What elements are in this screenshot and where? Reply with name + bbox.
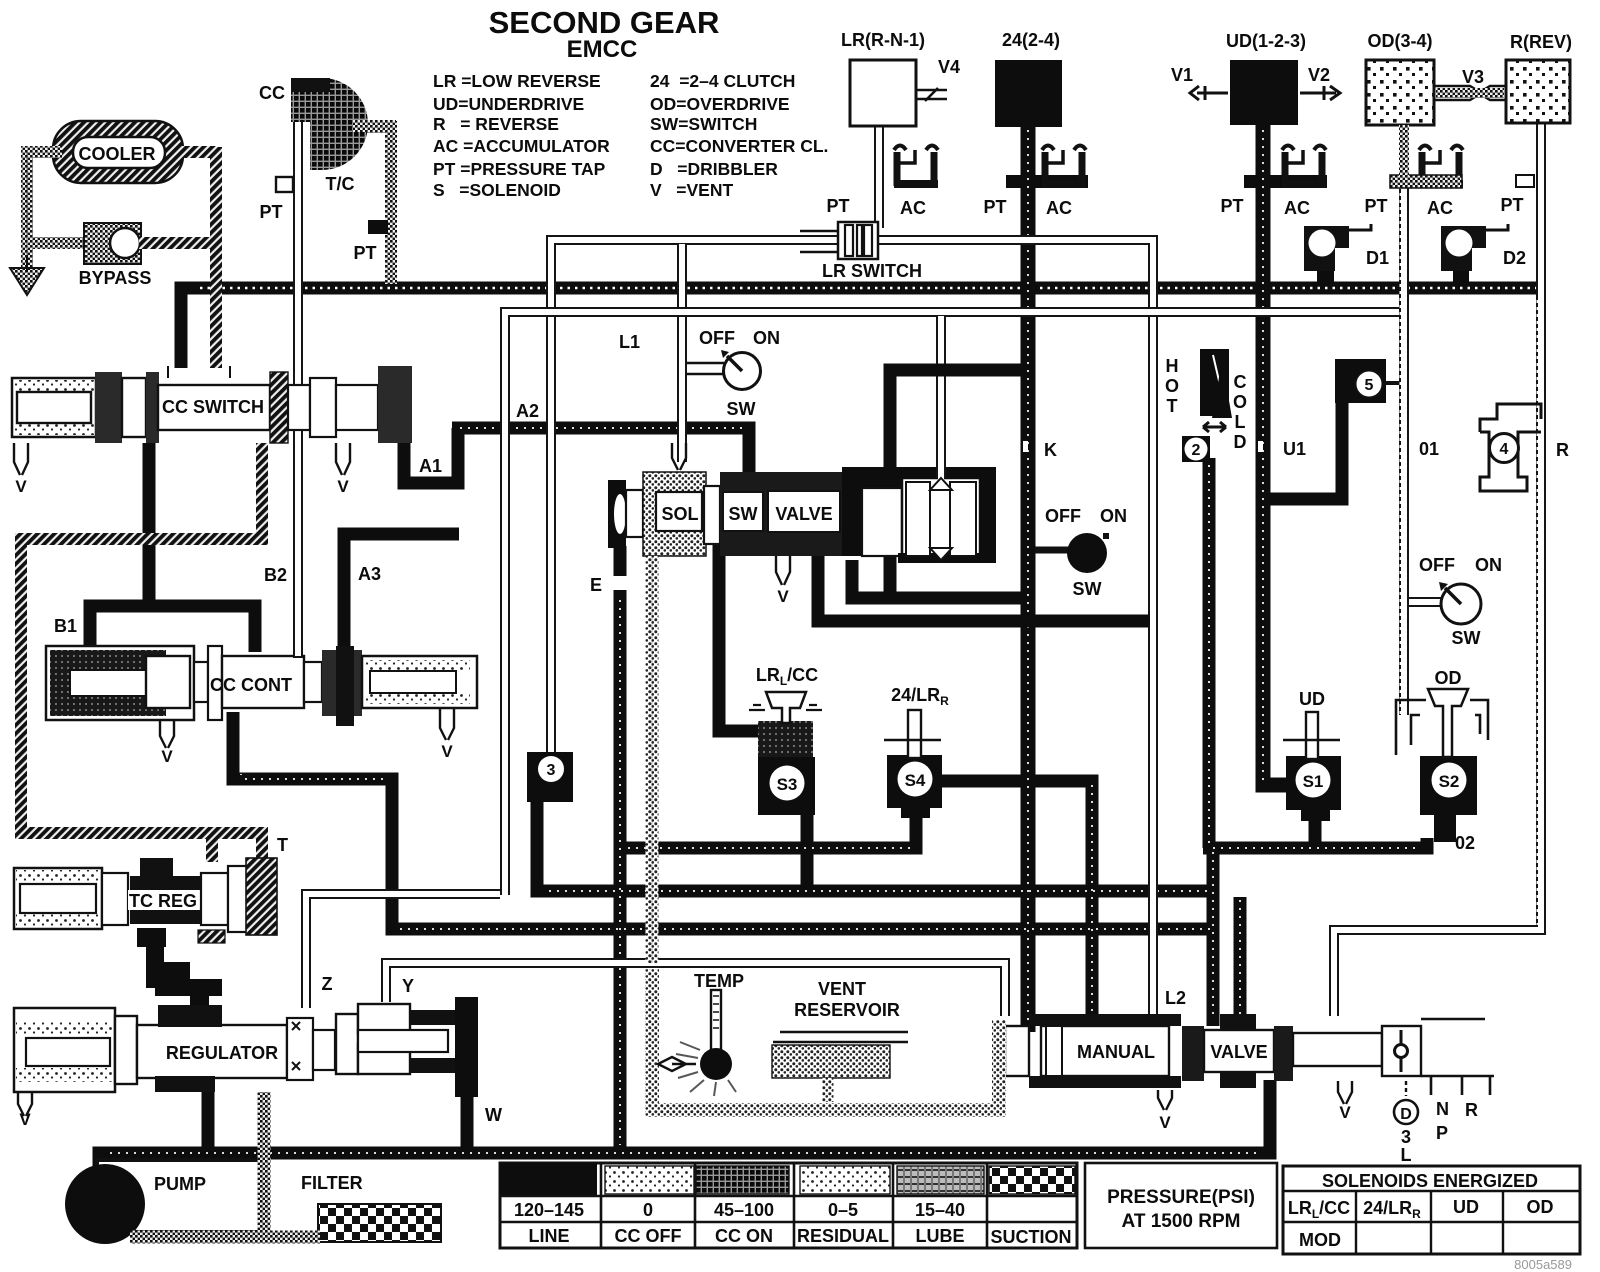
svg-text:LR SWITCH: LR SWITCH <box>822 261 922 281</box>
svg-text:UD: UD <box>1299 689 1325 709</box>
svg-text:ON: ON <box>753 328 780 348</box>
svg-text:D: D <box>1400 1106 1412 1123</box>
svg-text:4: 4 <box>1500 441 1509 458</box>
svg-text:EMCC: EMCC <box>567 36 638 63</box>
svg-text:L1: L1 <box>619 332 640 352</box>
svg-text:R: R <box>1465 1100 1478 1120</box>
svg-text:24 =2–4 CLUTCH: 24 =2–4 CLUTCH <box>650 71 795 91</box>
svg-text:PRESSURE(PSI): PRESSURE(PSI) <box>1107 1187 1255 1208</box>
svg-text:O: O <box>1233 392 1247 412</box>
svg-text:N: N <box>1436 1099 1449 1119</box>
svg-text:PT: PT <box>1220 196 1243 216</box>
svg-text:ON: ON <box>1100 506 1127 526</box>
svg-text:V: V <box>777 587 789 606</box>
svg-text:T: T <box>277 835 288 855</box>
svg-text:0: 0 <box>643 1200 653 1220</box>
svg-text:B1: B1 <box>54 616 77 636</box>
svg-text:AC: AC <box>1427 198 1453 218</box>
svg-text:D1: D1 <box>1366 248 1389 268</box>
svg-text:MOD: MOD <box>1299 1230 1341 1250</box>
svg-text:R = REVERSE: R = REVERSE <box>433 114 559 134</box>
svg-text:V: V <box>161 747 173 766</box>
svg-text:8005a589: 8005a589 <box>1514 1257 1572 1272</box>
svg-text:ON: ON <box>1475 555 1502 575</box>
svg-text:UD=UNDERDRIVE: UD=UNDERDRIVE <box>433 94 584 114</box>
svg-text:RESIDUAL: RESIDUAL <box>797 1226 889 1246</box>
svg-text:PT =PRESSURE TAP: PT =PRESSURE TAP <box>433 159 606 179</box>
svg-text:D2: D2 <box>1503 248 1526 268</box>
svg-text:OD: OD <box>1527 1197 1554 1217</box>
svg-text:3: 3 <box>1401 1127 1411 1147</box>
svg-text:5: 5 <box>1365 377 1374 394</box>
svg-text:S1: S1 <box>1303 772 1324 791</box>
svg-text:VALVE: VALVE <box>775 504 832 524</box>
svg-text:V1: V1 <box>1171 65 1193 85</box>
svg-text:V: V <box>19 1110 31 1129</box>
svg-text:E: E <box>590 575 602 595</box>
svg-text:LR =LOW REVERSE: LR =LOW REVERSE <box>433 71 601 91</box>
svg-text:P: P <box>1436 1123 1448 1143</box>
svg-text:UD(1-2-3): UD(1-2-3) <box>1226 31 1306 51</box>
svg-text:SW: SW <box>729 504 758 524</box>
svg-text:V2: V2 <box>1308 65 1330 85</box>
svg-text:UD: UD <box>1453 1197 1479 1217</box>
svg-text:OD(3-4): OD(3-4) <box>1367 31 1432 51</box>
svg-text:V: V <box>441 742 453 761</box>
svg-text:D =DRIBBLER: D =DRIBBLER <box>650 159 778 179</box>
svg-text:V: V <box>337 477 349 496</box>
svg-text:V =VENT: V =VENT <box>650 180 733 200</box>
svg-text:COOLER: COOLER <box>78 144 155 164</box>
svg-text:MANUAL: MANUAL <box>1077 1042 1155 1062</box>
svg-text:OD=OVERDRIVE: OD=OVERDRIVE <box>650 94 790 114</box>
svg-text:W: W <box>485 1105 502 1125</box>
svg-text:S3: S3 <box>777 775 798 794</box>
svg-text:24(2-4): 24(2-4) <box>1002 30 1060 50</box>
svg-text:LINE: LINE <box>528 1226 569 1246</box>
svg-text:AC: AC <box>1284 198 1310 218</box>
svg-text:D: D <box>1234 432 1247 452</box>
svg-text:15–40: 15–40 <box>915 1200 965 1220</box>
svg-text:LUBE: LUBE <box>916 1226 965 1246</box>
svg-text:L: L <box>1235 412 1246 432</box>
svg-text:CC CONT: CC CONT <box>210 675 292 695</box>
svg-text:OFF: OFF <box>1045 506 1081 526</box>
svg-text:3: 3 <box>547 762 556 779</box>
svg-text:TEMP: TEMP <box>694 971 744 991</box>
svg-text:S =SOLENOID: S =SOLENOID <box>433 180 561 200</box>
svg-text:OFF: OFF <box>699 328 735 348</box>
svg-text:AC =ACCUMULATOR: AC =ACCUMULATOR <box>433 136 610 156</box>
svg-text:C: C <box>1234 372 1247 392</box>
svg-text:SW: SW <box>1073 579 1102 599</box>
svg-text:LR(R-N-1): LR(R-N-1) <box>841 30 925 50</box>
svg-text:V: V <box>1339 1103 1351 1122</box>
svg-text:45–100: 45–100 <box>714 1200 774 1220</box>
svg-text:R: R <box>1556 440 1569 460</box>
svg-text:SECOND GEAR: SECOND GEAR <box>489 5 720 40</box>
svg-text:PT: PT <box>826 196 849 216</box>
svg-text:SOL: SOL <box>661 504 698 524</box>
svg-text:CC=CONVERTER CL.: CC=CONVERTER CL. <box>650 136 828 156</box>
svg-text:V4: V4 <box>938 57 960 77</box>
svg-text:CC ON: CC ON <box>715 1226 773 1246</box>
svg-text:CC OFF: CC OFF <box>615 1226 682 1246</box>
svg-text:L: L <box>1401 1145 1412 1165</box>
svg-text:A2: A2 <box>516 401 539 421</box>
svg-text:AT 1500 RPM: AT 1500 RPM <box>1122 1211 1241 1232</box>
svg-text:A3: A3 <box>358 564 381 584</box>
svg-text:PUMP: PUMP <box>154 1174 206 1194</box>
svg-text:OD: OD <box>1435 668 1462 688</box>
svg-text:L2: L2 <box>1165 988 1186 1008</box>
svg-text:H: H <box>1166 356 1179 376</box>
svg-text:02: 02 <box>1455 833 1475 853</box>
svg-text:U1: U1 <box>1283 439 1306 459</box>
svg-text:SW: SW <box>727 399 756 419</box>
svg-text:SUCTION: SUCTION <box>991 1227 1072 1247</box>
svg-text:B2: B2 <box>264 565 287 585</box>
svg-text:LRL/CC: LRL/CC <box>756 665 818 688</box>
svg-text:PT: PT <box>1364 196 1387 216</box>
svg-text:CC SWITCH: CC SWITCH <box>162 397 264 417</box>
svg-text:V: V <box>15 477 27 496</box>
svg-text:PT: PT <box>353 243 376 263</box>
svg-text:O: O <box>1165 376 1179 396</box>
svg-text:PT: PT <box>1500 195 1523 215</box>
svg-text:S4: S4 <box>905 771 926 790</box>
svg-text:T/C: T/C <box>326 174 355 194</box>
svg-text:RESERVOIR: RESERVOIR <box>794 1000 900 1020</box>
svg-text:2: 2 <box>1192 442 1201 459</box>
svg-text:BYPASS: BYPASS <box>79 268 152 288</box>
svg-text:PT: PT <box>259 202 282 222</box>
svg-text:A1: A1 <box>419 456 442 476</box>
svg-text:R(REV): R(REV) <box>1510 32 1572 52</box>
svg-text:SW=SWITCH: SW=SWITCH <box>650 114 757 134</box>
svg-text:REGULATOR: REGULATOR <box>166 1043 278 1063</box>
svg-text:PT: PT <box>983 197 1006 217</box>
svg-text:SW: SW <box>1452 628 1481 648</box>
svg-text:LRL/CC: LRL/CC <box>1288 1198 1350 1221</box>
svg-text:V: V <box>1159 1113 1171 1132</box>
svg-text:0–5: 0–5 <box>828 1200 858 1220</box>
svg-text:CC: CC <box>259 83 285 103</box>
svg-text:S2: S2 <box>1439 772 1460 791</box>
svg-text:OFF: OFF <box>1419 555 1455 575</box>
svg-text:VALVE: VALVE <box>1210 1042 1267 1062</box>
svg-text:AC: AC <box>900 198 926 218</box>
svg-text:K: K <box>1044 440 1057 460</box>
svg-text:V3: V3 <box>1462 67 1484 87</box>
svg-text:Y: Y <box>402 976 414 996</box>
svg-text:Z: Z <box>322 974 333 994</box>
svg-text:SOLENOIDS ENERGIZED: SOLENOIDS ENERGIZED <box>1322 1171 1538 1191</box>
svg-text:VENT: VENT <box>818 979 866 999</box>
svg-text:120–145: 120–145 <box>514 1200 584 1220</box>
svg-text:FILTER: FILTER <box>301 1173 363 1193</box>
svg-text:T: T <box>1167 396 1178 416</box>
svg-text:01: 01 <box>1419 439 1439 459</box>
svg-text:TC REG: TC REG <box>129 891 197 911</box>
svg-text:AC: AC <box>1046 198 1072 218</box>
